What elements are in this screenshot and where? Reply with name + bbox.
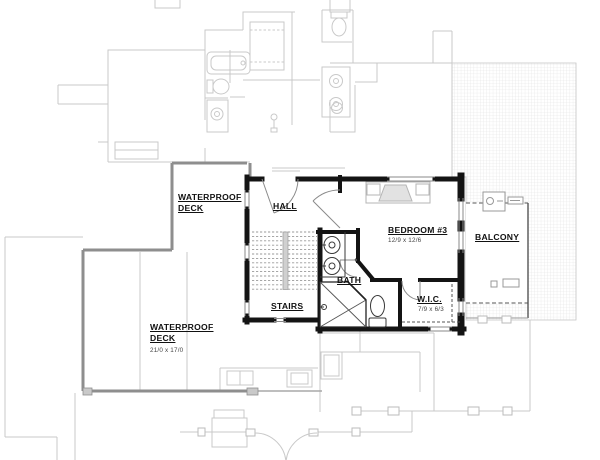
bed-outline	[366, 182, 430, 203]
label-waterproof-deck-lower: WATERPROOF DECK	[150, 322, 213, 344]
stairs-treads	[252, 232, 317, 290]
floor-plan-drawing	[0, 0, 600, 460]
label-bedroom-dims: 12/9 x 12/6	[388, 237, 421, 244]
label-waterproof-deck-upper: WATERPROOF DECK	[178, 192, 241, 214]
floor-plan: WATERPROOF DECK HALL BEDROOM #3 12/9 x 1…	[0, 0, 600, 460]
label-wic-dims: 7/9 x 6/3	[418, 306, 444, 313]
label-text: DECK	[150, 333, 213, 344]
label-bedroom: BEDROOM #3	[388, 225, 447, 236]
label-stairs: STAIRS	[271, 301, 303, 312]
label-text: WATERPROOF	[178, 192, 241, 203]
label-text: WATERPROOF	[150, 322, 213, 333]
label-hall: HALL	[273, 201, 297, 212]
label-text: DECK	[178, 203, 241, 214]
label-waterproof-deck-lower-dims: 21/0 x 17/0	[150, 347, 183, 354]
label-bath: BATH	[337, 275, 361, 286]
upper-floor-faint-outline	[58, 0, 452, 177]
label-balcony: BALCONY	[475, 232, 519, 243]
label-wic: W.I.C.	[417, 294, 442, 305]
